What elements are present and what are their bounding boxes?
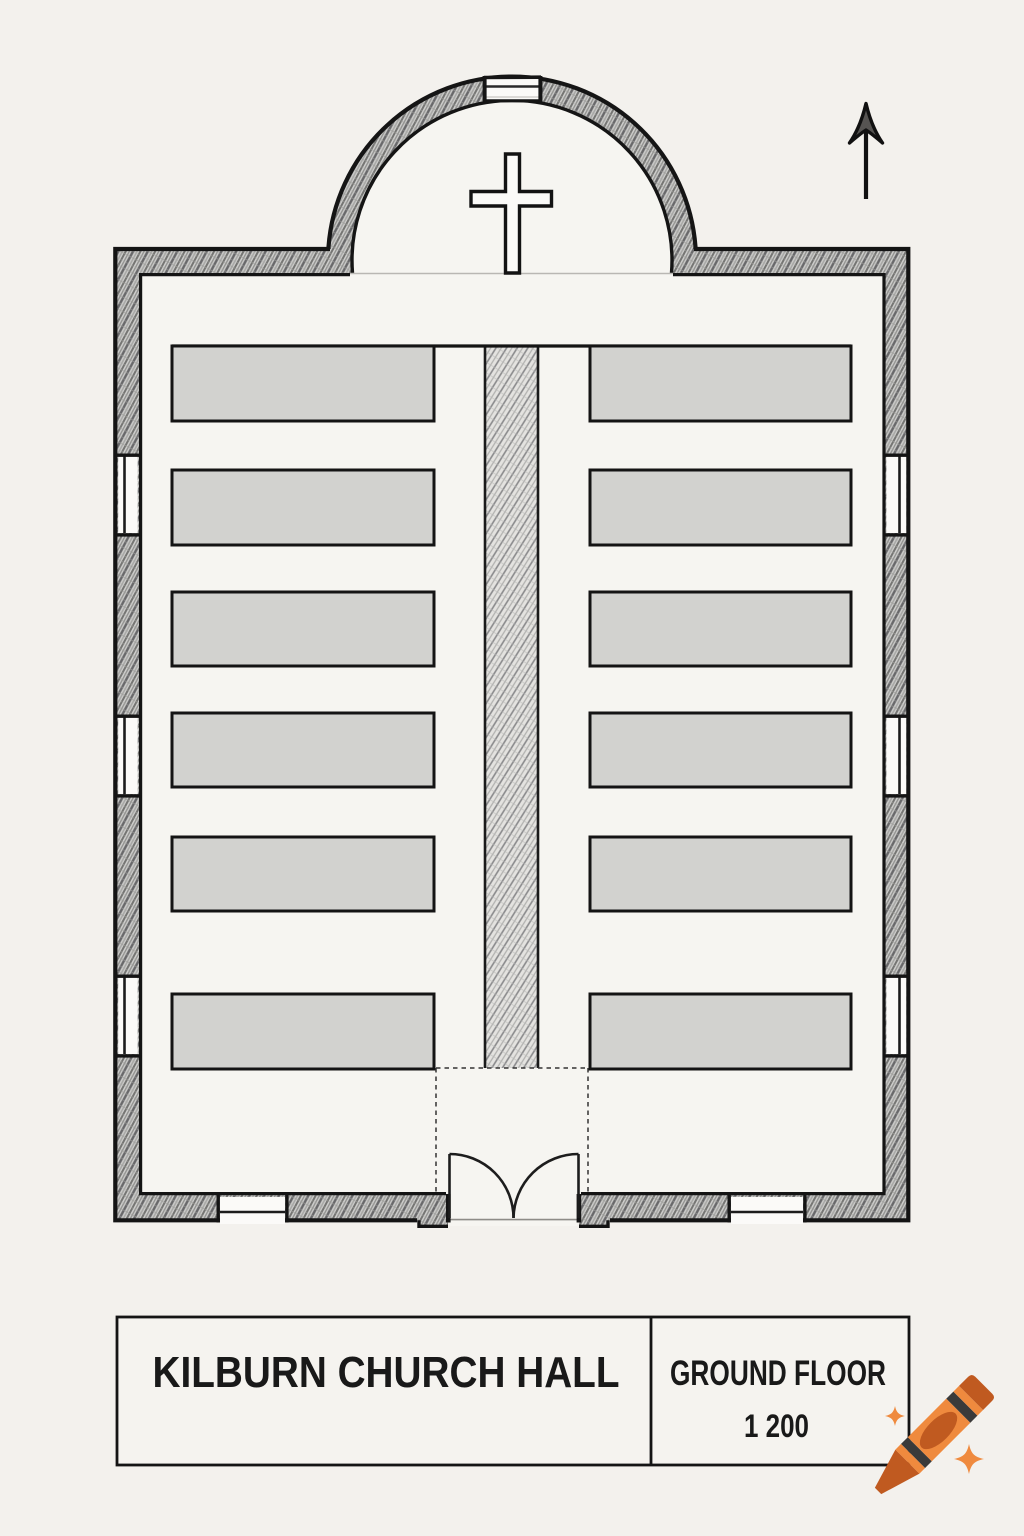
svg-text:KILBURN CHURCH HALL: KILBURN CHURCH HALL [153,1348,620,1397]
svg-text:GROUND FLOOR: GROUND FLOOR [670,1354,886,1393]
svg-text:1 200: 1 200 [744,1408,809,1444]
